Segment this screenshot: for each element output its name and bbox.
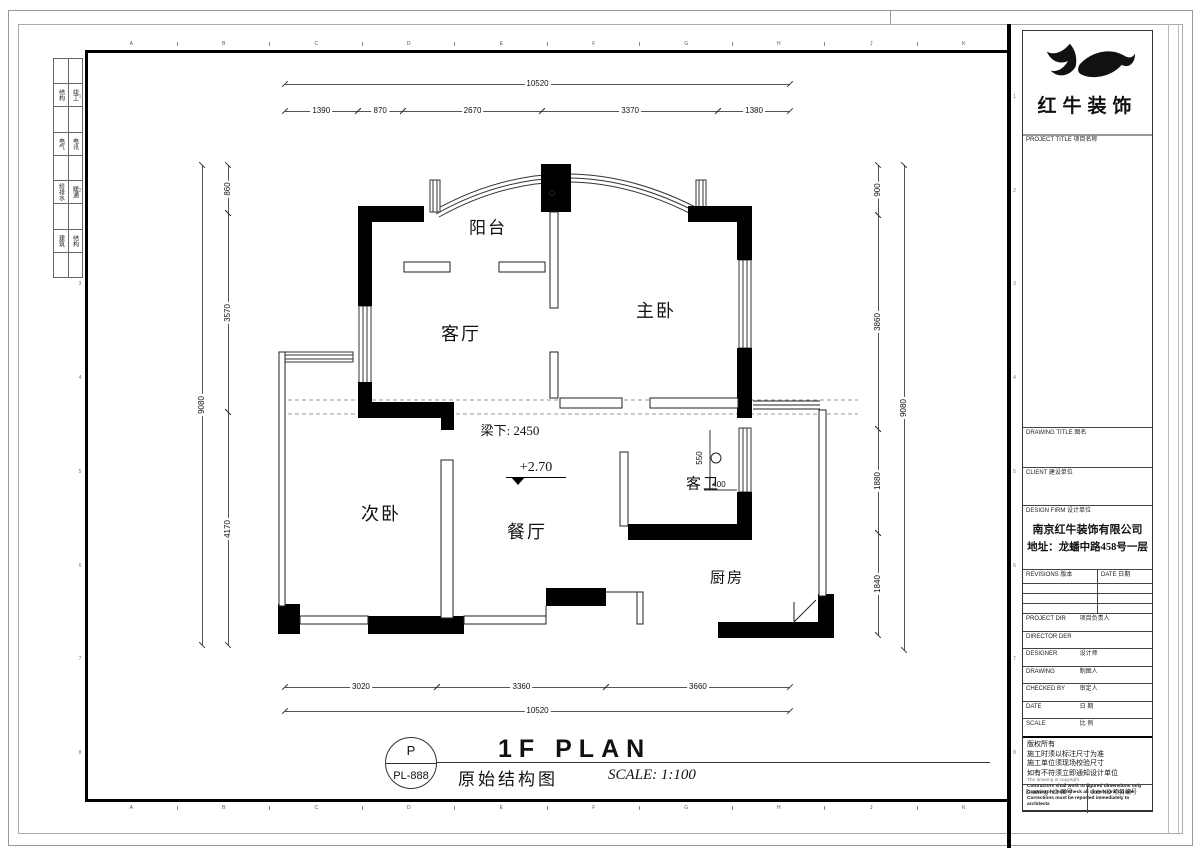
dim-right-overall: 9080	[898, 165, 910, 650]
discipline-row: 给排水 暖通	[54, 180, 82, 204]
ruler-number: 5	[1013, 469, 1016, 475]
dim-value: 2670	[462, 107, 484, 115]
discipline-label: 结构	[68, 230, 82, 252]
bubble-letter: P	[386, 738, 436, 764]
dim-value: 4170	[224, 518, 232, 540]
sheet-scale: SCALE: 1:100	[608, 767, 696, 784]
ruler-letter: F	[548, 803, 641, 813]
dim-value: 3570	[224, 302, 232, 324]
dim-value: 10520	[524, 707, 550, 715]
ruler-letter: G	[640, 803, 733, 813]
discipline-label: 给排水	[54, 181, 68, 203]
discipline-label: 电气	[54, 133, 68, 155]
discipline-strip: 结构 竣工 电气 电讯 给排水 暖通 建筑 结构	[53, 58, 83, 278]
revision-row-line	[1023, 593, 1152, 594]
designer-row: DESIGNER 设计师	[1023, 648, 1152, 666]
project-dir-row: PROJECT DIR 项目负责人	[1023, 613, 1152, 631]
sheet-line	[1178, 24, 1179, 834]
ruler-letter: E	[455, 39, 548, 49]
ruler-letter: A	[85, 803, 178, 813]
field-label: PROJECT TITLE 项目名称	[1026, 137, 1097, 143]
ruler-number: 6	[79, 563, 82, 569]
sheet-title-cn: 原始结构图	[458, 765, 558, 790]
sheet-line	[1168, 24, 1169, 834]
field-label: SCALE	[1026, 721, 1078, 728]
ruler-letter: C	[270, 803, 363, 813]
title-underline	[395, 762, 990, 763]
ruler-number: 1	[1013, 94, 1016, 100]
ruler-number: 4	[79, 375, 82, 381]
discipline-label: 电讯	[68, 133, 82, 155]
field-label-cn: 日 期	[1080, 704, 1094, 710]
note-line: 施工时须以标注尺寸为准	[1027, 750, 1148, 760]
director-row: DIRECTOR DER	[1023, 631, 1152, 648]
ruler-number: 8	[1013, 750, 1016, 756]
bubble-number: PL-888	[386, 764, 436, 789]
room-label-balcony: 阳台	[469, 214, 507, 239]
field-label-cn: 制图人	[1080, 669, 1098, 675]
field-label-cn: 项目负责人	[1080, 616, 1110, 622]
field-label: DATE 日期	[1101, 572, 1130, 579]
window-symbols	[283, 180, 751, 492]
field-label-cn: 审定人	[1080, 686, 1098, 692]
bath-drain-circle	[711, 453, 721, 463]
ruler-right: 1 2 3 4 5 6 7 8	[1011, 50, 1018, 800]
design-firm-address: 地址：龙蟠中路458号一层	[1023, 539, 1152, 554]
room-label-second: 次卧	[361, 500, 401, 526]
note-line: 如有不符须立即通知设计单位	[1027, 769, 1148, 779]
ruler-letter: E	[455, 803, 548, 813]
ruler-top: A B C D E F G H J K	[85, 39, 1010, 49]
field-label: CLIENT 建设单位	[1026, 470, 1073, 476]
dim-value: 1880	[874, 470, 882, 492]
fixtures	[550, 191, 722, 464]
dim-value: 1390	[310, 107, 332, 115]
ruler-letter: J	[825, 39, 918, 49]
fold-mark	[890, 10, 891, 24]
design-firm-name: 南京红牛装饰有限公司	[1023, 521, 1152, 537]
dim-left-segments: 860 3570 4170	[222, 165, 234, 645]
ruler-letter: J	[825, 803, 918, 813]
ruler-number: 7	[79, 656, 82, 662]
dim-value: 3860	[874, 311, 882, 333]
sheet-title-en: 1F PLAN	[498, 735, 651, 764]
field-label: DRAWING TITLE 图名	[1026, 430, 1086, 436]
beam-height-note: 梁下: 2450	[455, 420, 565, 439]
discipline-label: 建筑	[54, 230, 68, 252]
ruler-number: 3	[1013, 281, 1016, 287]
ruler-number: 3	[79, 281, 82, 287]
revisions-header: REVISIONS 版本 DATE 日期	[1023, 569, 1152, 583]
ruler-number: 7	[1013, 656, 1016, 662]
title-block: 红牛装饰 PROJECT TITLE 项目名称 DRAWING TITLE 图名…	[1022, 30, 1153, 812]
dim-top-segments: 1390 870 2670 3370 1380	[285, 105, 790, 117]
field-label: DESIGNER	[1026, 651, 1078, 658]
field-label: DATE	[1026, 704, 1078, 711]
discipline-label: 暖通	[68, 181, 82, 203]
scale-row: SCALE 比 例	[1023, 718, 1152, 736]
copyright-notes: 版权所有 施工时须以标注尺寸为准 施工单位须现场校验尺寸 如有不符须立即通知设计…	[1023, 736, 1152, 784]
floor-plan-drawing: 550 400	[270, 140, 870, 660]
client-field: CLIENT 建设单位	[1023, 467, 1152, 505]
dim-value: 3660	[687, 683, 709, 691]
room-label-master: 主卧	[636, 297, 676, 323]
dim-top-overall: 10520	[285, 78, 790, 90]
ruler-number: 6	[1013, 563, 1016, 569]
ruler-letter: H	[733, 39, 826, 49]
ruler-letter: B	[178, 39, 271, 49]
ruler-number: 8	[79, 750, 82, 756]
dim-right-segments: 900 3860 1880 1840	[872, 165, 884, 635]
design-firm-field: DESIGN FIRM 设计单位	[1023, 505, 1152, 569]
dim-value: 870	[372, 107, 389, 115]
dim-value: 10520	[524, 80, 550, 88]
titleblock-footer: Drawing NO 图号 Job NO 项目编号	[1023, 784, 1152, 813]
ruler-number: 4	[1013, 375, 1016, 381]
level-marker: +2.70	[506, 460, 566, 478]
ruler-number: 2	[1013, 188, 1016, 194]
note-line: 施工单位须现场校验尺寸	[1027, 759, 1148, 769]
date-row: DATE 日 期	[1023, 701, 1152, 718]
ruler-letter: C	[270, 39, 363, 49]
room-label-bath: 客卫	[686, 473, 720, 494]
dim-bottom-overall: 10520	[285, 705, 790, 717]
field-label: CHECKED BY	[1026, 686, 1078, 693]
ruler-letter: H	[733, 803, 826, 813]
ruler-letter: F	[548, 39, 641, 49]
ruler-bottom: A B C D E F G H J K	[85, 803, 1010, 813]
project-title-field: PROJECT TITLE 项目名称	[1023, 135, 1152, 427]
dim-value: 9080	[900, 397, 908, 419]
brand-name: 红牛装饰	[1023, 91, 1152, 118]
drawing-person-row: DRAWING 制图人	[1023, 666, 1152, 683]
field-label: DRAWING	[1026, 669, 1078, 676]
ruler-letter: B	[178, 803, 271, 813]
field-label: REVISIONS 版本	[1026, 572, 1072, 578]
field-label-cn: 设计师	[1080, 651, 1098, 657]
revision-row-line	[1023, 583, 1152, 584]
dim-value: 900	[874, 181, 882, 198]
field-label: DESIGN FIRM 设计单位	[1026, 508, 1091, 514]
dim-value: 1840	[874, 573, 882, 595]
ruler-letter: D	[363, 39, 456, 49]
drawing-title-field: DRAWING TITLE 图名	[1023, 427, 1152, 467]
dim-value: 3360	[511, 683, 533, 691]
dim-left-overall: 9080	[196, 165, 208, 645]
discipline-label: 竣工	[68, 84, 82, 106]
ruler-letter: K	[918, 39, 1011, 49]
dim-550-label: 550	[695, 451, 704, 465]
ruler-letter: G	[640, 39, 733, 49]
job-no-field: Job NO 项目编号	[1088, 785, 1152, 813]
dim-value: 3370	[619, 107, 641, 115]
dim-value: 9080	[198, 394, 206, 416]
dim-value: 3020	[350, 683, 372, 691]
checked-by-row: CHECKED BY 审定人	[1023, 683, 1152, 701]
kitchen-flue	[794, 600, 816, 622]
drawing-number-bubble: P PL-888	[385, 737, 437, 789]
discipline-row: 结构 竣工	[54, 83, 82, 107]
field-label: PROJECT DIR	[1026, 616, 1078, 623]
dim-bottom-segments: 3020 3360 3660	[285, 681, 790, 693]
dim-value: 860	[224, 180, 232, 197]
discipline-label: 结构	[54, 84, 68, 106]
room-label-dining: 餐厅	[507, 518, 547, 544]
ruler-number: 5	[79, 469, 82, 475]
ruler-letter: A	[85, 39, 178, 49]
field-label: DIRECTOR DER	[1026, 634, 1078, 641]
drawing-no-field: Drawing NO 图号	[1023, 785, 1088, 813]
discipline-row: 建筑 结构	[54, 229, 82, 253]
discipline-row: 电气 电讯	[54, 132, 82, 156]
ruler-letter: K	[918, 803, 1011, 813]
dim-value: 1380	[743, 107, 765, 115]
revision-row-line	[1023, 603, 1152, 604]
room-label-living: 客厅	[441, 320, 481, 346]
ruler-letter: D	[363, 803, 456, 813]
bull-logo-icon	[1041, 37, 1137, 87]
room-label-kitchen: 厨房	[710, 567, 744, 588]
revision-column-divider	[1097, 569, 1098, 613]
note-line: 版权所有	[1027, 740, 1148, 750]
field-label-cn: 比 例	[1080, 721, 1094, 727]
